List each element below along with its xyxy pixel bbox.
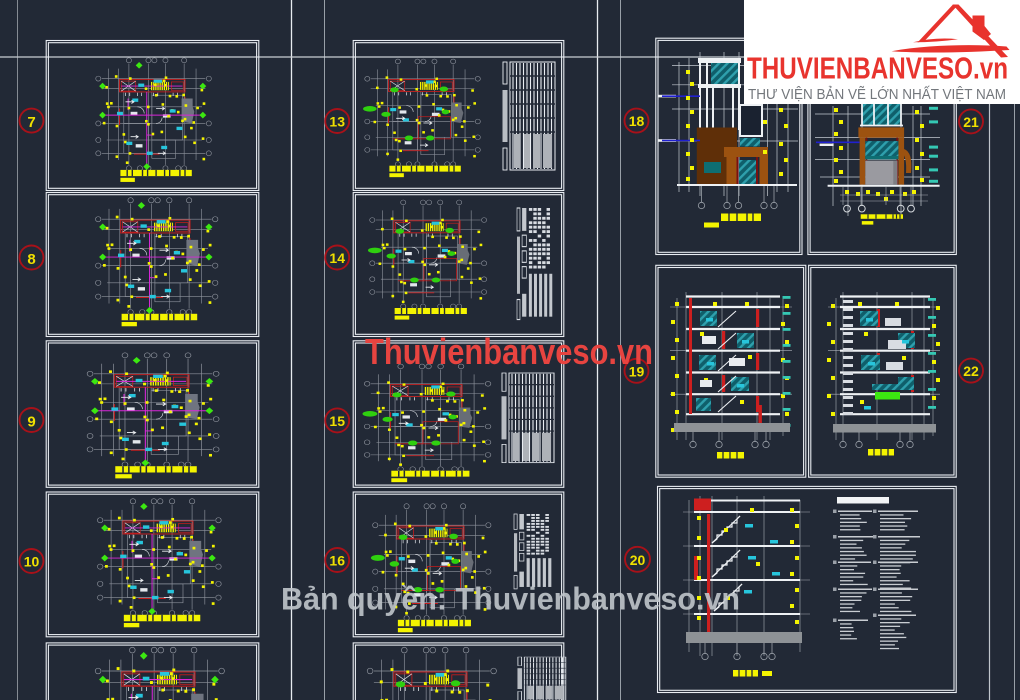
- svg-text:Thuvienbanveso.vn: Thuvienbanveso.vn: [365, 331, 653, 372]
- svg-text:Bản quyền: Thuvienbanveso.vn: Bản quyền: Thuvienbanveso.vn: [281, 581, 740, 617]
- svg-text:15: 15: [329, 413, 345, 429]
- svg-text:16: 16: [329, 553, 345, 569]
- svg-text:8: 8: [27, 251, 35, 268]
- svg-text:9: 9: [27, 414, 35, 431]
- svg-text:13: 13: [329, 114, 345, 130]
- svg-text:18: 18: [629, 113, 645, 129]
- svg-text:10: 10: [24, 554, 40, 570]
- svg-text:20: 20: [630, 552, 646, 568]
- svg-text:THƯ VIỆN BẢN VẼ LỚN NHẤT VIỆT: THƯ VIỆN BẢN VẼ LỚN NHẤT VIỆT NAM: [748, 86, 1006, 103]
- svg-text:21: 21: [963, 114, 979, 130]
- svg-text:22: 22: [963, 363, 979, 379]
- svg-text:7: 7: [27, 114, 35, 131]
- svg-text:THUVIENBANVESO.vn: THUVIENBANVESO.vn: [747, 51, 1008, 86]
- svg-text:14: 14: [329, 250, 345, 266]
